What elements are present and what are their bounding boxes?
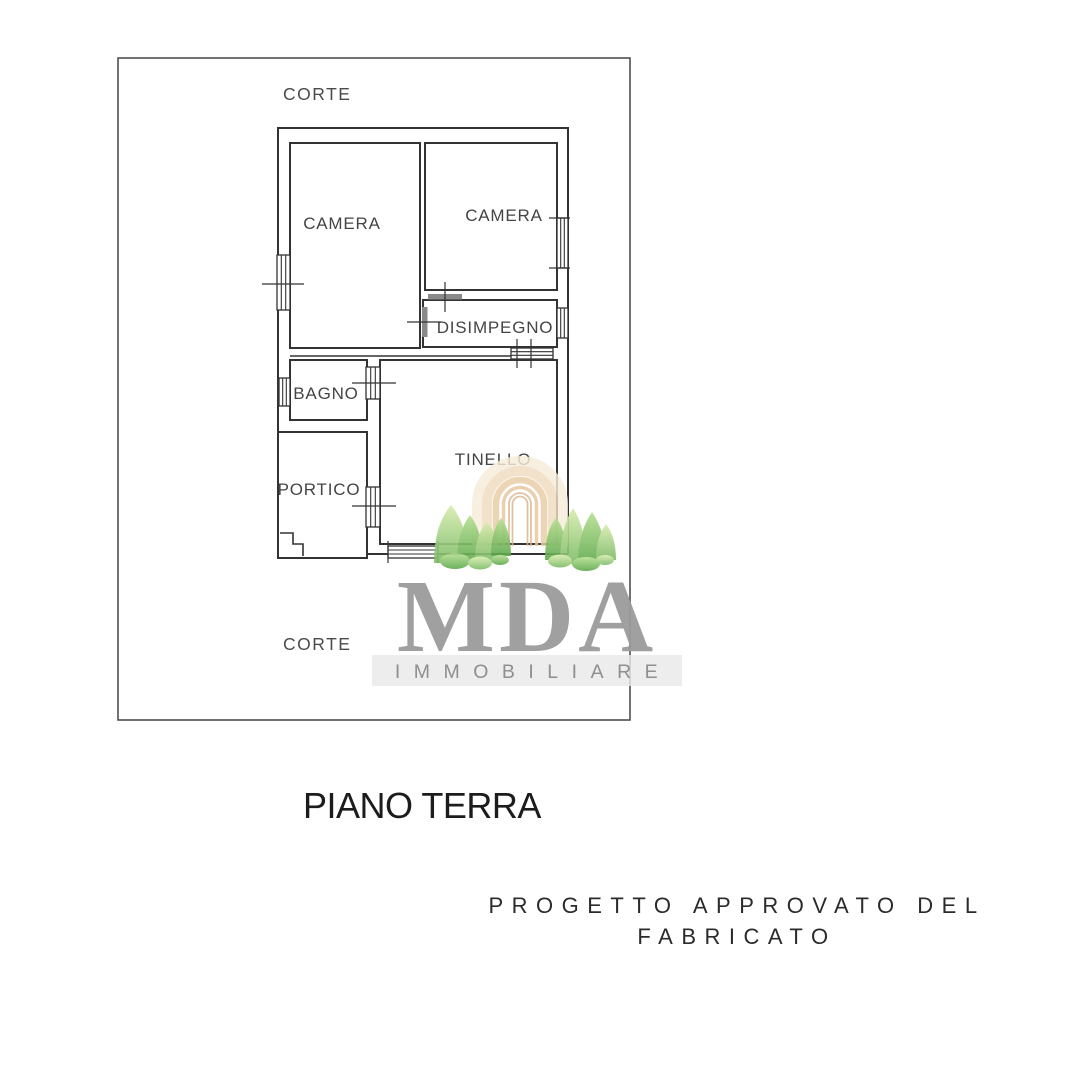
- room-label-disimpegno: DISIMPEGNO: [437, 318, 554, 337]
- room-label-camera-right: CAMERA: [465, 206, 543, 225]
- mda-subtitle-text: IMMOBILIARE: [395, 661, 671, 683]
- room-camera-left-walls: [290, 143, 420, 348]
- approval-text-line2: FABRICATO: [637, 924, 836, 949]
- window-tinello-top: [511, 339, 553, 368]
- room-label-bagno: BAGNO: [293, 384, 358, 403]
- floor-title: PIANO TERRA: [303, 785, 541, 826]
- approval-text-line1: PROGETTO APPROVATO DEL: [488, 893, 985, 918]
- court-label-top: CORTE: [283, 84, 351, 104]
- room-label-portico: PORTICO: [278, 480, 361, 499]
- door-disimpegno-camera-right: [428, 282, 462, 312]
- portico-corner-step: [280, 533, 303, 556]
- window-camera-left: [262, 255, 304, 310]
- court-label-bottom: CORTE: [283, 634, 351, 654]
- window-disimpegno: [557, 308, 568, 338]
- floorplan-page: CORTE CORTE: [0, 0, 1080, 1080]
- window-camera-right: [549, 218, 570, 268]
- window-bagno: [279, 378, 290, 406]
- floorplan-drawing: CORTE CORTE: [0, 0, 1080, 1080]
- room-label-camera-left: CAMERA: [303, 214, 381, 233]
